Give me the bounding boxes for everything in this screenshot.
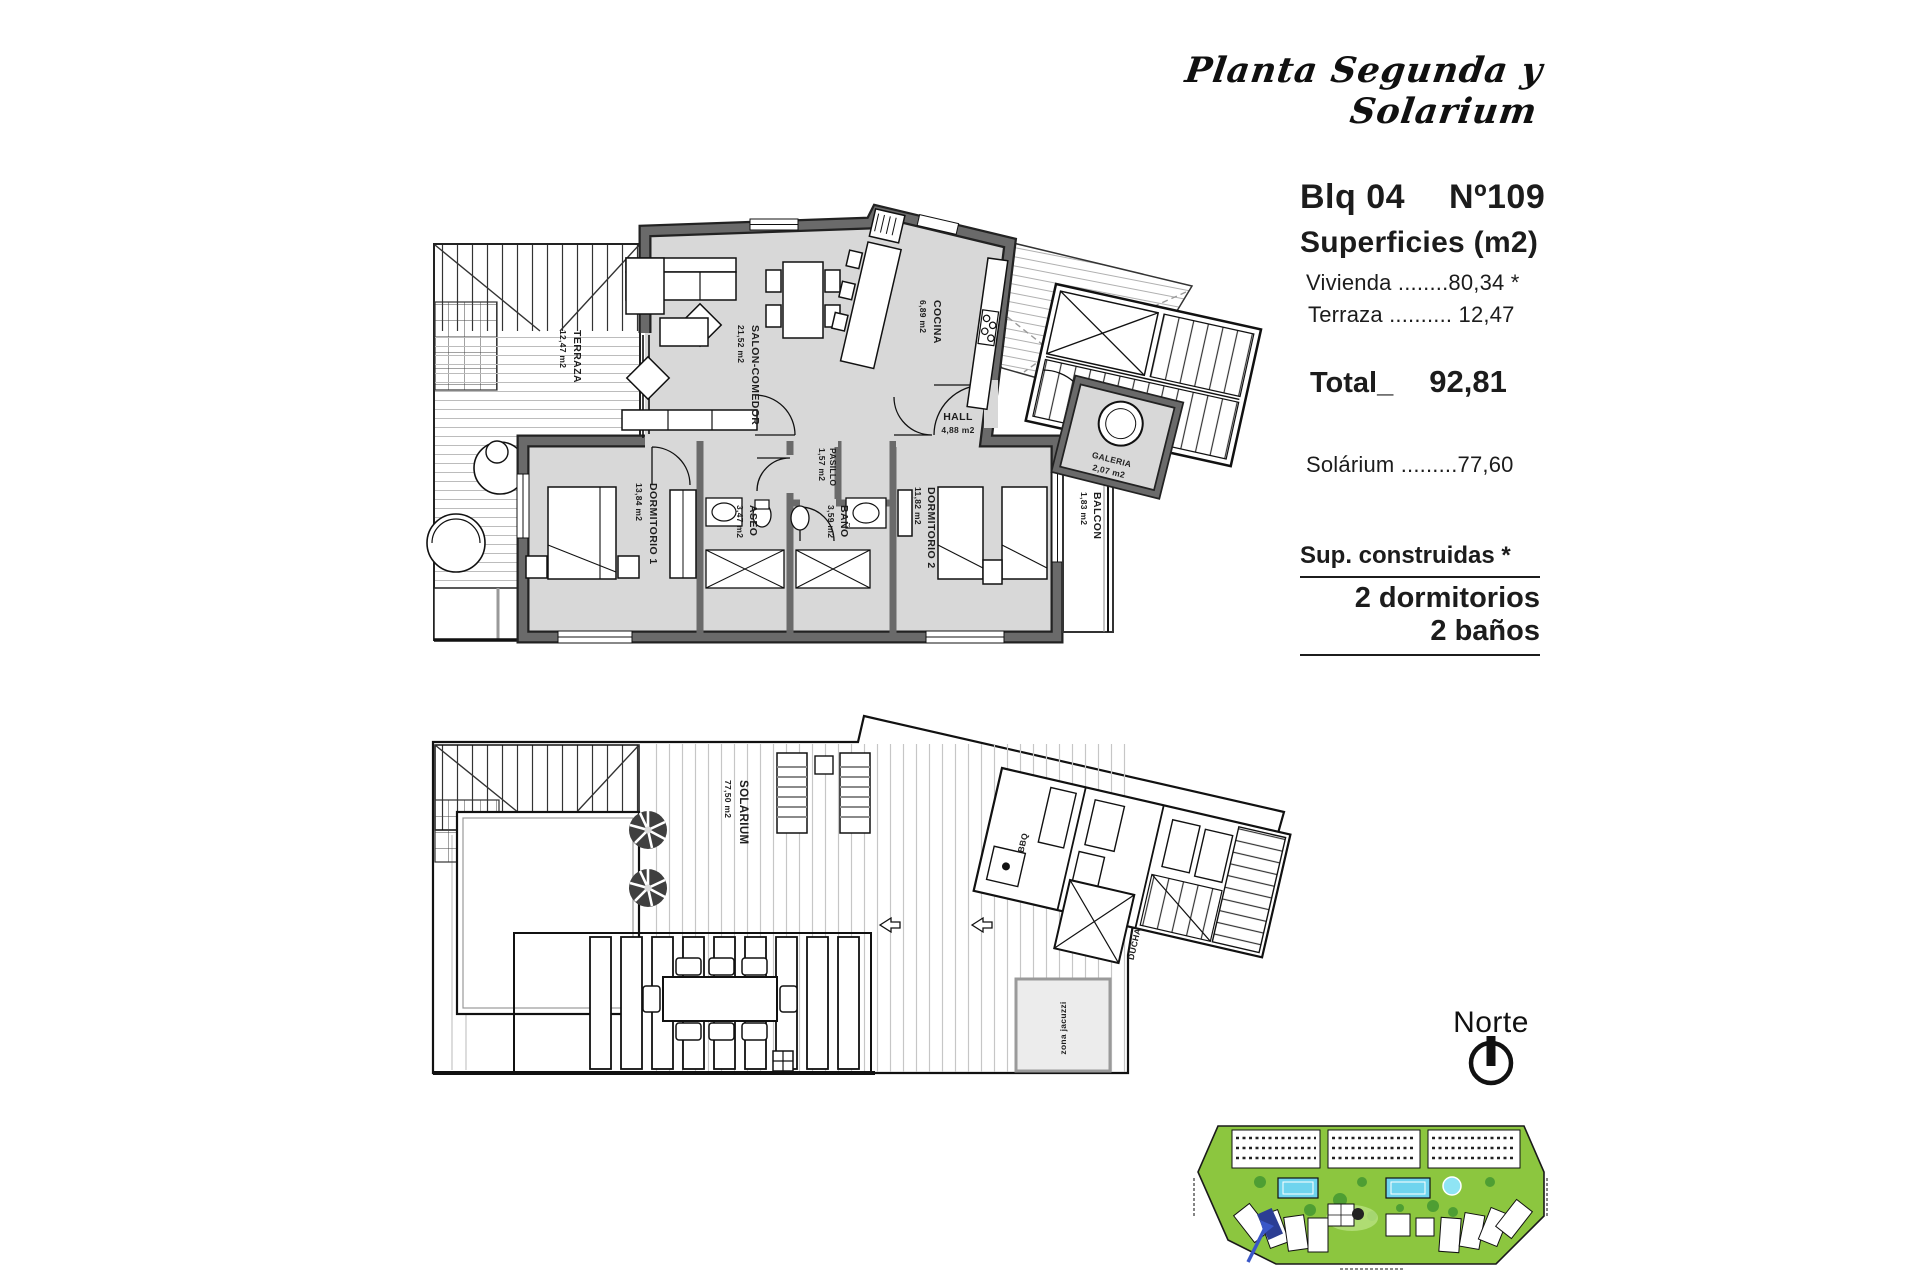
tv-unit xyxy=(622,410,757,430)
palm-tree xyxy=(629,869,667,907)
dining-chair xyxy=(766,305,781,327)
plans-canvas: GALERIA 2,07 m2 xyxy=(0,0,1920,1280)
playground xyxy=(1352,1208,1364,1220)
terrace-chair xyxy=(427,514,485,572)
double-bed xyxy=(548,487,616,579)
wardrobe xyxy=(898,490,912,536)
terraza-label: TERRAZA xyxy=(571,330,583,383)
fridge-icon xyxy=(869,209,905,243)
nightstand xyxy=(526,556,547,578)
hall-label: HALL xyxy=(943,411,973,423)
coffee-table xyxy=(660,318,708,346)
single-bed xyxy=(1002,487,1047,579)
site-plan xyxy=(1190,1120,1550,1275)
pool xyxy=(1386,1178,1430,1198)
dorm1-area: 13,84 m2 xyxy=(634,483,644,521)
solarium-area: 77,50 m2 xyxy=(723,780,733,818)
toilet-icon xyxy=(791,506,809,530)
dorm2-label: DORMITORIO 2 xyxy=(925,487,937,569)
single-bed xyxy=(938,487,983,579)
pool xyxy=(1278,1178,1318,1198)
dorm2-area: 11,82 m2 xyxy=(913,487,923,525)
solarium-label: SOLARIUM xyxy=(737,780,749,845)
sofa-chaise xyxy=(626,258,664,314)
salon-label: SALON-COMEDOR xyxy=(749,325,761,425)
solarium-plan: BBQ DUCHA xyxy=(433,716,1290,1073)
cocina-label: COCINA xyxy=(931,300,943,344)
dining-table xyxy=(783,262,823,338)
north-indicator: Norte xyxy=(1453,1006,1529,1083)
outdoor-table xyxy=(663,977,777,1021)
terrace-table xyxy=(486,441,508,463)
terraza-area: 12,47 m2 xyxy=(558,330,568,368)
galeria-room: GALERIA 2,07 m2 xyxy=(1056,380,1179,494)
sink-icon xyxy=(853,503,879,523)
bano-area: 3,59 m2 xyxy=(826,505,836,538)
nightstand xyxy=(618,556,639,578)
salon-area: 21,52 m2 xyxy=(736,325,746,363)
bano-label: BAÑO xyxy=(838,505,851,538)
pasillo-area: 1,57 m2 xyxy=(817,448,827,481)
aseo-area: 3,47 m2 xyxy=(735,505,745,538)
aseo-label: ASEO xyxy=(747,505,759,536)
balcon-label: BALCON xyxy=(1091,492,1103,539)
floorplan-sheet: Planta Segunda y Solarium Blq 04 Nº109 S… xyxy=(0,0,1920,1280)
hall-area: 4,88 m2 xyxy=(941,425,974,435)
jacuzzi-label: zona jacuzzi xyxy=(1058,1001,1068,1054)
side-table xyxy=(815,756,833,774)
jacuzzi-zone: zona jacuzzi xyxy=(1016,979,1110,1071)
dining-chair xyxy=(825,270,840,292)
apartment-plan: GALERIA 2,07 m2 xyxy=(427,205,1261,643)
north-label: Norte xyxy=(1453,1006,1529,1039)
pasillo-label: PASILLO xyxy=(828,448,838,486)
dorm1-label: DORMITORIO 1 xyxy=(647,483,659,565)
cocina-area: 6,89 m2 xyxy=(918,300,928,333)
dining-chair xyxy=(766,270,781,292)
splash-pool xyxy=(1443,1177,1461,1195)
bedroom1-furniture xyxy=(526,487,696,579)
nightstand xyxy=(983,560,1002,584)
sink-icon xyxy=(712,503,736,521)
balcon-area: 1,83 m2 xyxy=(1079,492,1089,525)
palm-tree xyxy=(629,811,667,849)
